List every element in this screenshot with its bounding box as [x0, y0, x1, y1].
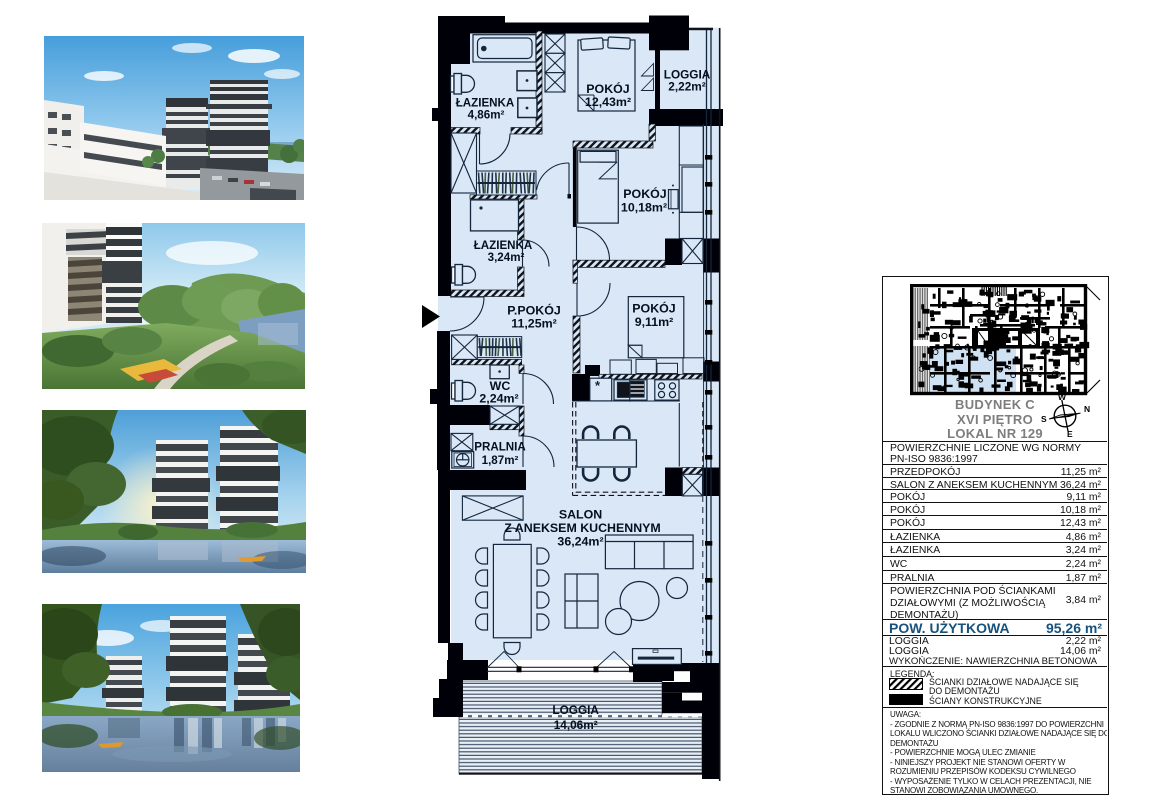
svg-text:LOGGIA: LOGGIA: [552, 703, 599, 717]
svg-text:12,43m²: 12,43m²: [585, 95, 631, 109]
svg-text:1,87m²: 1,87m²: [482, 454, 519, 467]
svg-text:SALON: SALON: [559, 508, 602, 522]
svg-text:ŁAZIENKA: ŁAZIENKA: [456, 97, 515, 110]
svg-text:11,25m²: 11,25m²: [511, 317, 556, 331]
svg-text:POKÓJ: POKÓJ: [586, 81, 629, 96]
svg-text:W: W: [1058, 392, 1067, 402]
svg-text:2,22m²: 2,22m²: [668, 80, 705, 94]
svg-text:POKÓJ: POKÓJ: [632, 301, 675, 316]
svg-text:14,06m²: 14,06m²: [554, 718, 598, 732]
svg-text:10,18m²: 10,18m²: [621, 201, 667, 215]
svg-text:PRALNIA: PRALNIA: [474, 441, 526, 454]
svg-text:N: N: [1084, 404, 1090, 414]
svg-text:2,24m²: 2,24m²: [479, 391, 518, 405]
svg-text:36,24m²: 36,24m²: [557, 535, 603, 549]
svg-text:4,86m²: 4,86m²: [468, 109, 505, 122]
svg-text:P.POKÓJ: P.POKÓJ: [507, 303, 561, 318]
svg-text:E: E: [1067, 429, 1073, 439]
svg-text:9,11m²: 9,11m²: [635, 315, 674, 329]
svg-text:POKÓJ: POKÓJ: [623, 186, 666, 201]
svg-text:3,24m²: 3,24m²: [488, 251, 525, 264]
svg-text:Z ANEKSEM KUCHENNYM: Z ANEKSEM KUCHENNYM: [504, 521, 661, 535]
svg-text:S: S: [1041, 414, 1047, 424]
